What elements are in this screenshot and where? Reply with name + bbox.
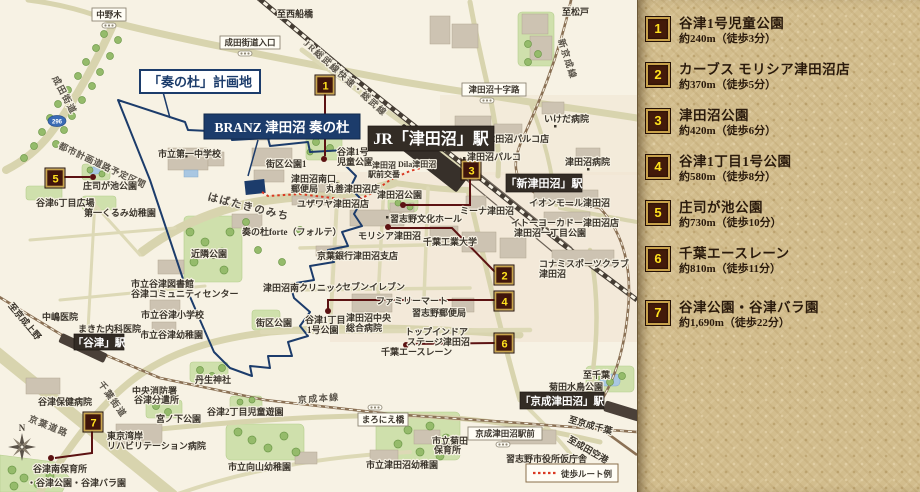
marker-7-num: 7 — [90, 418, 96, 430]
legend-item-6: 6 千葉エースレーン 約810m（徒歩11分） — [646, 246, 910, 276]
legend-num-2: 2 — [646, 63, 670, 87]
legend-distance-5: 約730m（徒歩10分） — [679, 217, 782, 230]
maronie-label: まろにえ橋 — [362, 415, 405, 425]
post-office-label-2: 郵便局 — [291, 183, 318, 194]
compass-n-label: N — [19, 423, 26, 433]
marker-3: 3 — [461, 160, 481, 180]
gaiku-park1-label: 街区公園1 — [265, 158, 307, 169]
jr-tsudanuma-station-label: JR「津田沼」駅 — [368, 126, 494, 151]
chiba-tech-label: 千葉工業大学 — [423, 236, 477, 247]
chuo-hospital-label-2: 総合病院 — [346, 322, 382, 333]
map-area: 1 2 3 4 5 6 7 JR総武線快速・総武線 新京成線 京成本線 — [0, 0, 637, 492]
shin-tsudanuma-station-text: 「新津田沼」駅 — [506, 176, 583, 190]
legend-name-5: 庄司が池公園 — [679, 200, 782, 215]
forte-label: 奏の杜forte（フォルテ） — [241, 226, 341, 237]
chuo-hospital-label-1: 津田沼中央 — [346, 312, 392, 323]
tsudanuma-hospital-label: 津田沼病院 — [565, 156, 610, 167]
konami-label-2: 津田沼 — [539, 268, 566, 279]
legend-item-3: 3 津田沼公園 約420m（徒歩6分） — [646, 108, 910, 138]
familymart-label: ファミリーマート — [376, 296, 448, 306]
shoji-pond-park-label: 庄司が池公園 — [83, 180, 137, 191]
walk-route-legend-text: 徒歩ルート例 — [560, 469, 613, 479]
yatsu-rose-garden-label: ・谷津公園・谷津バラ園 — [27, 477, 126, 488]
bunka-hall-label: 習志野文化ホール — [390, 213, 462, 224]
aeon-mall-label: イオンモール津田沼 — [529, 197, 610, 208]
marker-6: 6 — [494, 333, 514, 353]
miyanoshita-park-label: 宮ノ下公園 — [156, 413, 201, 424]
morisia-label: モリシア津田沼 — [358, 230, 421, 241]
keiyo-bank-label: 京葉銀行津田沼支店 — [317, 250, 398, 261]
marker-7: 7 — [83, 412, 103, 432]
legend-name-4: 谷津1丁目1号公園 — [679, 154, 792, 169]
legend-name-1: 谷津1号児童公園 — [679, 16, 784, 31]
keisei-tsudanuma-station-text: 「京成津田沼」駅 — [520, 395, 604, 408]
legend-num-6: 6 — [646, 247, 670, 271]
kinrin-park-label: 近隣公園 — [191, 248, 227, 259]
yatsu1go-park-label-1: 谷津1号 — [337, 146, 369, 157]
nakajima-clinic-label: 中嶋医院 — [42, 311, 78, 322]
yatsu-kindergarten-label: 市立谷津幼稚園 — [140, 329, 203, 340]
mukaiyama-kindergarten-label: 市立向山幼稚園 — [228, 461, 291, 472]
legend-num-3: 3 — [646, 109, 670, 133]
yatsu1chome-park-label-1: 谷津1丁目 — [305, 314, 346, 325]
yatsu-station-label: 「谷津」駅 — [73, 334, 126, 350]
legend-distance-2: 約370m（徒歩5分） — [679, 79, 850, 92]
minami-clinic-label: 津田沼南クリニック — [263, 282, 344, 293]
yatsu-hoken-hospital-label: 谷津保健病院 — [38, 396, 92, 407]
narashino-post-label: 習志野郵便局 — [412, 307, 466, 318]
marker-4-num: 4 — [501, 297, 508, 309]
legend-distance-4: 約580m（徒歩8分） — [679, 171, 792, 184]
nakanogi-label: 中野木 — [96, 10, 122, 20]
fire-station-label-2: 谷津分遣所 — [134, 394, 179, 405]
tsudanuma-kindergarten-label: 市立津田沼幼稚園 — [366, 459, 438, 470]
koban-label-1: 津田沼 — [372, 160, 396, 170]
marker-1-num: 1 — [322, 81, 328, 93]
legend-name-7: 谷津公園・谷津バラ園 — [679, 300, 819, 315]
walk-route-legend: 徒歩ルート例 — [526, 464, 618, 482]
jujiro-label: 津田沼十字路 — [468, 85, 520, 95]
legend-num-5: 5 — [646, 201, 670, 225]
marker-5: 5 — [45, 168, 65, 188]
top-indoor-label-1: トップインドア — [405, 326, 468, 337]
marker-6-num: 6 — [501, 339, 507, 351]
keisei-ekimae-label: 京成津田沼駅前 — [475, 429, 535, 439]
legend-distance-7: 約1,690m（徒歩22分） — [679, 317, 819, 330]
yatsu1go-park-label-2: 児童公園 — [336, 156, 373, 167]
legend-name-2: カーブス モリシア津田沼店 — [679, 62, 850, 77]
tsudanuma-park-label: 津田沼公園 — [377, 189, 422, 200]
seven-eleven-label: セブンイレブン — [342, 281, 405, 292]
marker-2-num: 2 — [501, 271, 507, 283]
marker-4: 4 — [494, 291, 514, 311]
page: 1 2 3 4 5 6 7 JR総武線快速・総武線 新京成線 京成本線 — [0, 0, 920, 492]
yatsu-library-label-1: 市立谷津図書館 — [131, 278, 194, 289]
marker-3-num: 3 — [468, 166, 474, 178]
gaiku-park-south-label: 街区公園 — [255, 317, 292, 328]
post-office-label-1: 津田沼南口 — [291, 173, 336, 184]
jr-tsudanuma-station-text: JR「津田沼」駅 — [373, 129, 490, 148]
dila-label: Dila津田沼 — [398, 159, 436, 169]
makita-clinic-label: まきた内科医院 — [78, 323, 141, 334]
legend-name-3: 津田沼公園 — [679, 108, 776, 123]
route-296-number: 296 — [52, 120, 63, 126]
wangan-hospital-label-2: リハビリテーション病院 — [107, 440, 206, 451]
mizudori-park-label: 菊田水鳥公園 — [548, 381, 603, 392]
legend-num-7: 7 — [646, 301, 670, 325]
to-matsudo-label: 至松戸 — [562, 6, 589, 17]
yatsu-station-text: 「谷津」駅 — [73, 336, 126, 349]
top-indoor-label-2: ステージ津田沼 — [407, 336, 470, 347]
branz-label: BRANZ 津田沼 奏の杜 — [204, 114, 360, 139]
marker-5-num: 5 — [52, 174, 58, 186]
legend-item-5: 5 庄司が池公園 約730m（徒歩10分） — [646, 200, 910, 230]
nyu-shrine-label: 丹生神社 — [195, 374, 231, 385]
legend-name-6: 千葉エースレーン — [679, 246, 790, 261]
legend-item-1: 1 谷津1号児童公園 約240m（徒歩3分） — [646, 16, 910, 46]
city-office-label: 習志野市役所仮庁舎 — [506, 453, 588, 464]
kikuta-nursery-label-2: 保育所 — [433, 444, 461, 455]
itoyokado-label: イトーヨーカドー津田沼店 — [511, 217, 619, 228]
to-nishifunabashi-label: 至西船橋 — [277, 8, 314, 19]
yatsu6-plaza-label: 谷津6丁目広場 — [36, 197, 95, 208]
shin-tsudanuma-station-label: 「新津田沼」駅 — [506, 174, 583, 192]
wangan-hospital-label-1: 東京湾岸 — [107, 430, 143, 441]
narita-iriguchi-label: 成田街道入口 — [224, 38, 275, 48]
legend-num-4: 4 — [646, 155, 670, 179]
daiichi-junior-high-label: 市立第一中学校 — [158, 148, 222, 159]
legend-item-7: 7 谷津公園・谷津バラ園 約1,690m（徒歩22分） — [646, 300, 910, 330]
yatsu-elementary-label: 市立谷津小学校 — [141, 309, 205, 320]
yatsu1chome-park-label-2: 1号公園 — [307, 325, 339, 335]
yatsu2-playground-label: 谷津2丁目児童遊園 — [207, 406, 284, 417]
yatsu-library-label-2: 谷津コミュニティセンター — [131, 288, 238, 299]
route-296-shield: 296 — [48, 116, 66, 127]
mina-label: ミーナ津田沼 — [460, 205, 514, 216]
plan-site-text: 「奏の杜」計画地 — [148, 75, 252, 90]
legend-distance-3: 約420m（徒歩6分） — [679, 125, 776, 138]
legend-item-2: 2 カーブス モリシア津田沼店 約370m（徒歩5分） — [646, 62, 910, 92]
yuzawaya-label: ユザワヤ津田沼店 — [297, 198, 369, 209]
legend-distance-1: 約240m（徒歩3分） — [679, 33, 784, 46]
legend-distance-6: 約810m（徒歩11分） — [679, 263, 790, 276]
maruzen-label: 丸善津田沼店 — [325, 183, 380, 194]
legend-item-4: 4 谷津1丁目1号公園 約580m（徒歩8分） — [646, 154, 910, 184]
to-chiba-label: 至千葉 — [583, 369, 611, 380]
kurumi-kindergarten-label: 第一くるみ幼稚園 — [84, 207, 156, 218]
plan-site-label: 「奏の杜」計画地 — [140, 70, 260, 93]
legend-num-1: 1 — [646, 17, 670, 41]
tsudanuma1-park-label: 津田沼一丁目公園 — [514, 227, 586, 238]
keisei-tsudanuma-station-label: 「京成津田沼」駅 — [520, 392, 604, 409]
minami-nursery-label: 谷津南保育所 — [33, 463, 87, 474]
branz-text: BRANZ 津田沼 奏の杜 — [214, 119, 350, 135]
konami-label-1: コナミスポーツクラブ — [539, 258, 629, 269]
marker-1: 1 — [315, 75, 335, 95]
legend-panel: 1 谷津1号児童公園 約240m（徒歩3分） 2 カーブス モリシア津田沼店 約… — [637, 0, 920, 492]
ace-lane-label: 千葉エースレーン — [381, 346, 452, 357]
parco-label: 津田沼パルコ — [467, 151, 521, 162]
ikeda-hospital-label: いけだ病院 — [544, 113, 589, 124]
marker-2: 2 — [494, 265, 514, 285]
koban-label-2: 駅前交番 — [368, 169, 401, 179]
